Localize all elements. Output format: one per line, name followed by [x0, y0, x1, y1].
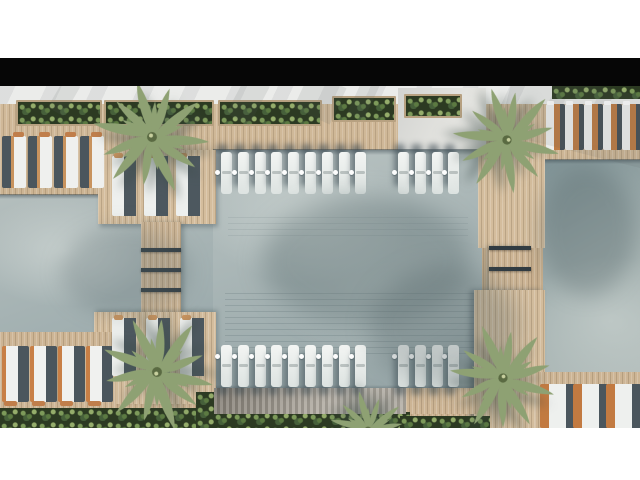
in-pool-bottom-left-group	[255, 345, 266, 387]
in-pool-top-left-group	[322, 152, 333, 194]
bridge-step-gap	[489, 246, 531, 250]
deck-loungers-top-left	[2, 136, 26, 188]
deck-loungers-top-left	[54, 136, 78, 188]
deck-loungers-bottom-right	[606, 384, 640, 428]
in-pool-top-left-group	[288, 152, 299, 194]
letterbox-bar	[0, 58, 640, 86]
in-pool-top-left-group	[305, 152, 316, 194]
in-pool-bottom-left-group	[322, 345, 333, 387]
in-pool-top-right-group	[415, 152, 426, 194]
deck-loungers-bottom-left	[2, 346, 29, 402]
pool-rendering-page	[0, 0, 640, 480]
deck-loungers-bottom-left	[58, 346, 85, 402]
in-pool-top-left-group	[238, 152, 249, 194]
in-pool-top-right-group	[398, 152, 409, 194]
bridge-step-gap	[489, 267, 531, 271]
in-pool-bottom-left-group	[288, 345, 299, 387]
in-pool-top-left-group	[271, 152, 282, 194]
deck-loungers-top-left	[28, 136, 52, 188]
water-shadow	[540, 166, 635, 296]
in-pool-bottom-left-group	[238, 345, 249, 387]
in-pool-top-left-group	[221, 152, 232, 194]
deck-loungers-bottom-left	[30, 346, 57, 402]
pool-plan-rendering	[0, 86, 640, 428]
in-pool-bottom-left-group	[271, 345, 282, 387]
palm-top-left	[80, 86, 224, 209]
in-pool-bottom-left-group	[305, 345, 316, 387]
in-pool-top-left-group	[355, 152, 366, 194]
